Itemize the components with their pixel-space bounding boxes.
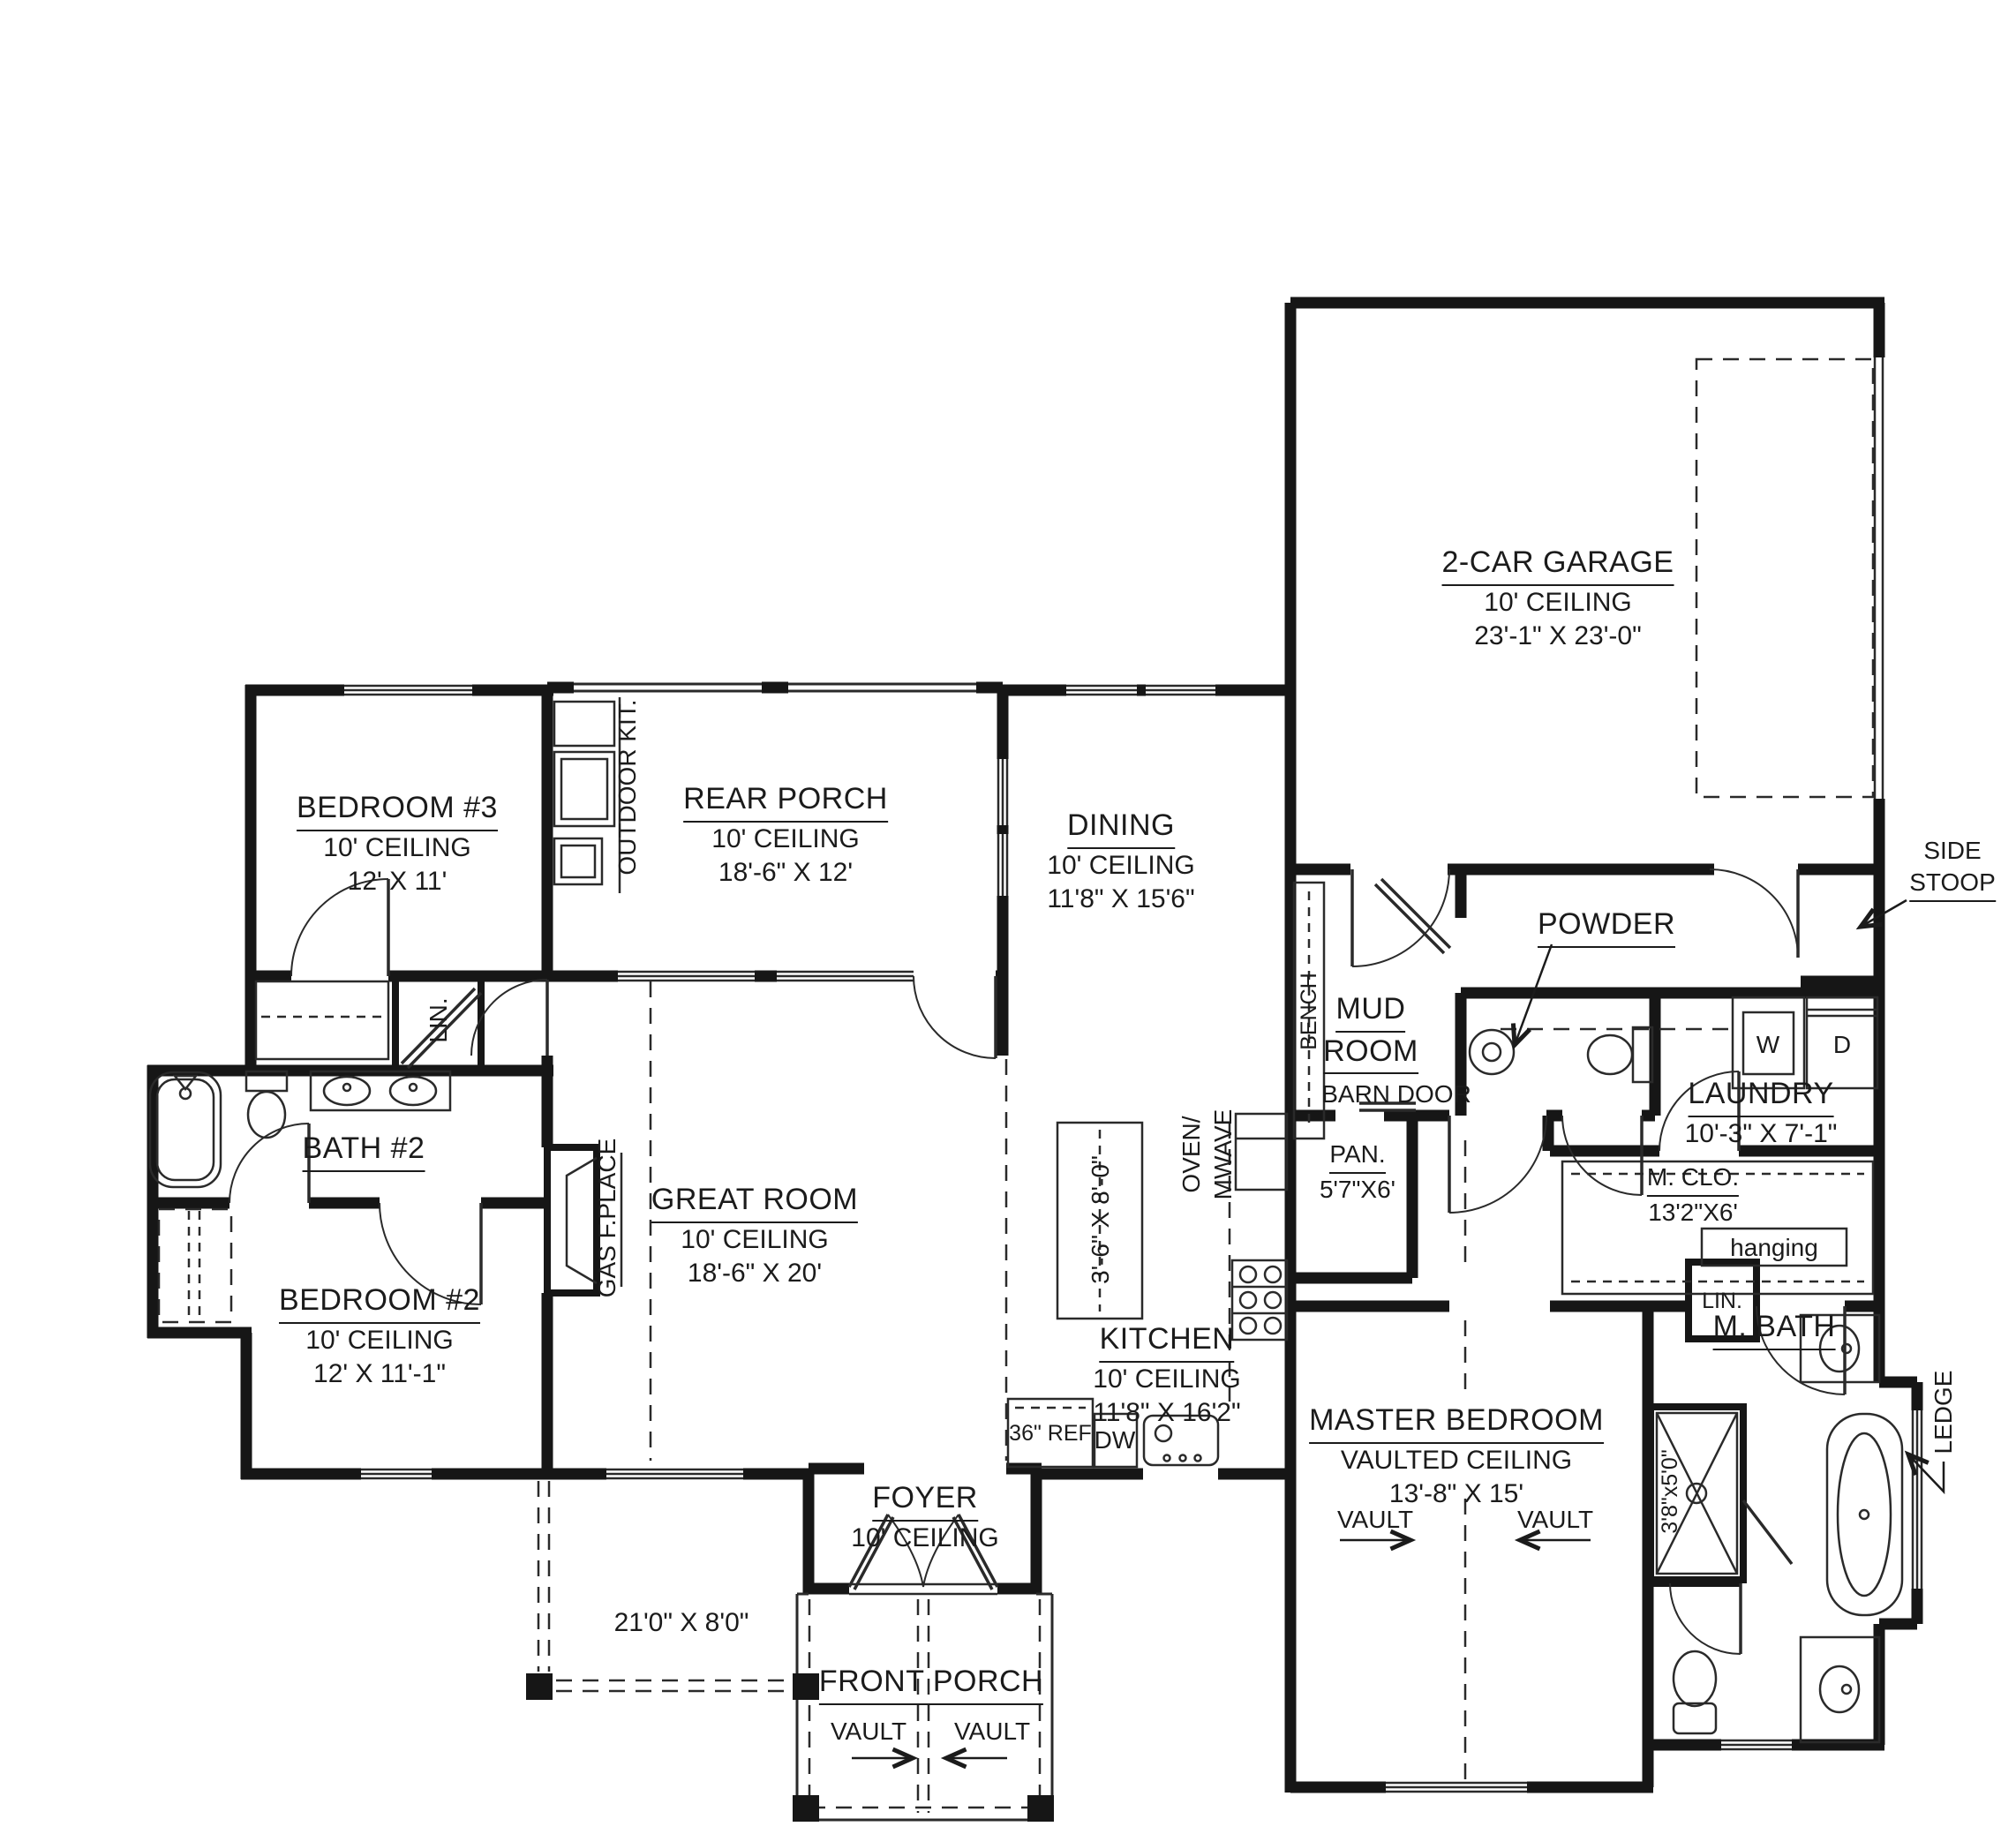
label-vault-porch-left: VAULT — [831, 1716, 906, 1748]
label-outdoor-kitchen: OUTDOOR KIT. — [612, 699, 643, 875]
label-oven-mwave: OVEN/ MWAVE — [1176, 1109, 1239, 1200]
floor-plan-drawing — [0, 0, 2016, 1834]
bedroom3-closet — [256, 981, 388, 1059]
label-dryer: D — [1833, 1029, 1851, 1061]
label-fridge: 36" REF — [1009, 1419, 1092, 1447]
outdoor-kitchen-cabinet — [554, 702, 614, 746]
label-shower-dims: 3'8"x5'0" — [1656, 1449, 1684, 1533]
label-linen-hall: LIN. — [423, 997, 455, 1042]
room-label-mud-room: MUD ROOM — [1323, 990, 1418, 1074]
vanity-bath2 — [311, 1071, 450, 1110]
sink-icon — [1820, 1666, 1859, 1712]
label-dishwasher: DW — [1095, 1424, 1136, 1456]
room-label-master-closet: M. CLO. 13'2"X6' — [1647, 1161, 1739, 1229]
label-vault-master-left: VAULT — [1337, 1504, 1413, 1536]
room-label-garage: 2-CAR GARAGE 10' CEILING 23'-1" X 23'-0" — [1442, 544, 1674, 653]
room-label-dining: DINING 10' CEILING 11'8" X 15'6" — [1047, 807, 1194, 916]
label-washer: W — [1756, 1029, 1779, 1061]
label-porch-dims: 21'0" X 8'0" — [614, 1606, 749, 1640]
powder-sink — [1470, 1030, 1514, 1074]
room-label-front-porch: FRONT PORCH — [819, 1663, 1043, 1705]
room-label-foyer: FOYER 10' CEILING — [851, 1479, 998, 1555]
label-gas-fireplace: GAS F.PLACE — [591, 1139, 623, 1298]
label-ledge: LEDGE — [1928, 1371, 1960, 1454]
master-vanity-2 — [1801, 1637, 1879, 1742]
label-bench: BENCH — [1295, 973, 1323, 1050]
room-label-great-room: GREAT ROOM 10' CEILING 18'-6" X 20' — [651, 1181, 858, 1290]
label-barn-door: BARN DOOR — [1321, 1079, 1471, 1110]
room-label-pantry: PAN. 5'7"X6' — [1320, 1139, 1395, 1206]
room-label-bedroom2: BEDROOM #2 10' CEILING 12' X 11'-1" — [279, 1282, 480, 1391]
room-label-bath2: BATH #2 — [303, 1130, 425, 1172]
floor-plan: 2-CAR GARAGE 10' CEILING 23'-1" X 23'-0"… — [0, 0, 2016, 1834]
label-island-dims: 3'-6" X 8'-0" — [1085, 1155, 1117, 1284]
bedroom2-closet-dashed — [159, 1209, 231, 1322]
room-label-laundry: LAUNDRY 10'-3" X 7'-1" — [1685, 1075, 1838, 1151]
label-vault-porch-right: VAULT — [954, 1716, 1030, 1748]
room-label-rear-porch: REAR PORCH 10' CEILING 18'-6" X 12' — [683, 780, 888, 890]
bedroom2-closet-rod — [189, 1211, 199, 1320]
outdoor-grill — [554, 752, 614, 826]
garage-door-dashed — [1696, 359, 1873, 797]
room-label-kitchen: KITCHEN 10' CEILING 11'8" X 16'2" — [1093, 1320, 1240, 1430]
master-toilet — [1674, 1651, 1716, 1706]
room-label-bedroom3: BEDROOM #3 10' CEILING 12' X 11' — [297, 789, 498, 898]
room-label-powder: POWDER — [1538, 906, 1675, 948]
oven-microwave-cabinet — [1236, 1114, 1287, 1190]
label-linen-master: LIN. — [1702, 1287, 1742, 1315]
room-label-side-stoop: SIDE STOOP — [1909, 835, 1996, 902]
fireplace — [547, 1147, 597, 1293]
label-hanging: hanging — [1730, 1232, 1818, 1264]
label-vault-master-right: VAULT — [1517, 1504, 1593, 1536]
room-label-master: MASTER BEDROOM VAULTED CEILING 13'-8" X … — [1309, 1402, 1604, 1511]
